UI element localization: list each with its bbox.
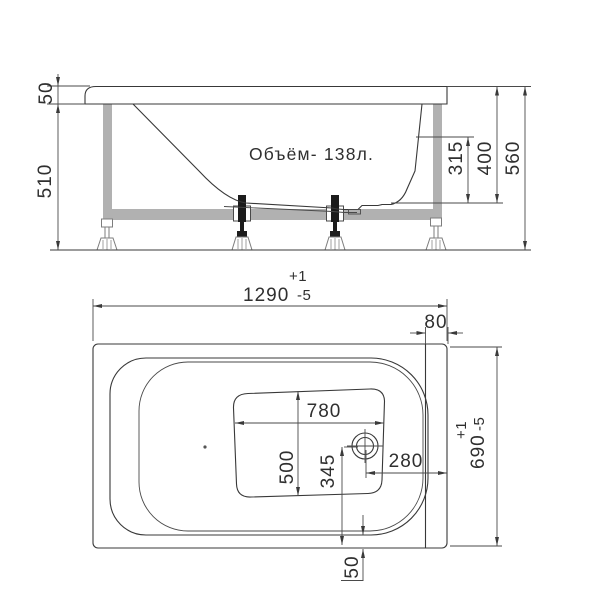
dim-bottom-length: 780 — [307, 401, 342, 422]
dim-total-height: 560 — [503, 141, 524, 176]
left-foot — [97, 219, 117, 250]
dim-foot-rim-width: 50 — [342, 555, 363, 578]
plan-arrowheads — [93, 304, 499, 558]
dim-stand-height: 510 — [35, 164, 56, 199]
plan-view: 1290 +1 -5 80 690 +1 -5 780 500 345 280 … — [93, 268, 502, 581]
wall-top-edge — [139, 362, 423, 531]
right-post — [433, 104, 442, 210]
dim-drain-to-edge: 280 — [389, 451, 424, 472]
bathtub-technical-drawing: Объём- 138л. 50 510 315 400 560 — [0, 0, 600, 600]
dim-head-rim-width: 80 — [424, 312, 447, 333]
dim-rim-height: 50 — [36, 81, 57, 104]
length-dim-label: 1290 +1 -5 — [243, 268, 311, 306]
dim-length: 1290 — [243, 285, 289, 306]
middle-foot-2 — [325, 195, 345, 250]
dim-length-tol-minus: -5 — [297, 287, 311, 304]
side-view: Объём- 138л. 50 510 315 400 560 — [35, 74, 531, 250]
tub-outer-edge — [93, 344, 447, 548]
drawing-sheet: Объём- 138л. 50 510 315 400 560 — [0, 0, 600, 600]
dim-inner-depth: 315 — [446, 141, 467, 176]
center-mark — [203, 445, 206, 448]
plan-extension-lines — [93, 299, 502, 546]
drain — [347, 429, 383, 463]
dim-length-tol-plus: +1 — [289, 268, 307, 285]
width-dim-label: 690 +1 -5 — [453, 417, 489, 469]
rim-inner-edge — [110, 358, 428, 535]
dim-bottom-width: 500 — [277, 450, 298, 485]
dim-drain-to-end: 345 — [318, 454, 339, 489]
plan-dimension-lines — [93, 306, 497, 581]
tub-rim-profile — [85, 87, 447, 105]
dim-width-tol-plus: +1 — [453, 421, 470, 439]
dim-width: 690 — [468, 434, 489, 469]
frame-rail — [103, 209, 442, 220]
left-post — [103, 104, 112, 210]
dim-width-tol-minus: -5 — [471, 417, 488, 431]
dim-depth-to-bottom: 400 — [475, 141, 496, 176]
volume-label: Объём- 138л. — [249, 144, 374, 164]
right-foot — [426, 218, 446, 250]
